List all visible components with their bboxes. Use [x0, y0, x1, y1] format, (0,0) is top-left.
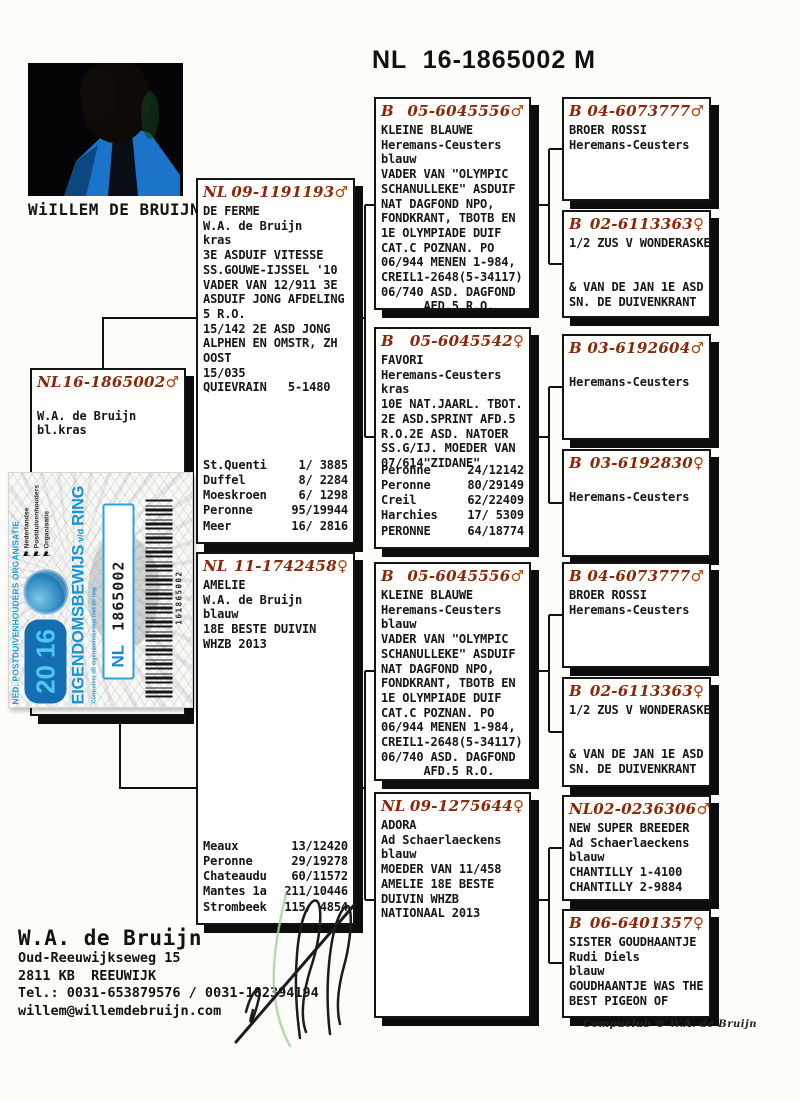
pedigree-certificate-page: { "page": { "title": "NL 16-1865002 M", … — [0, 0, 800, 1100]
signature — [0, 0, 800, 1100]
